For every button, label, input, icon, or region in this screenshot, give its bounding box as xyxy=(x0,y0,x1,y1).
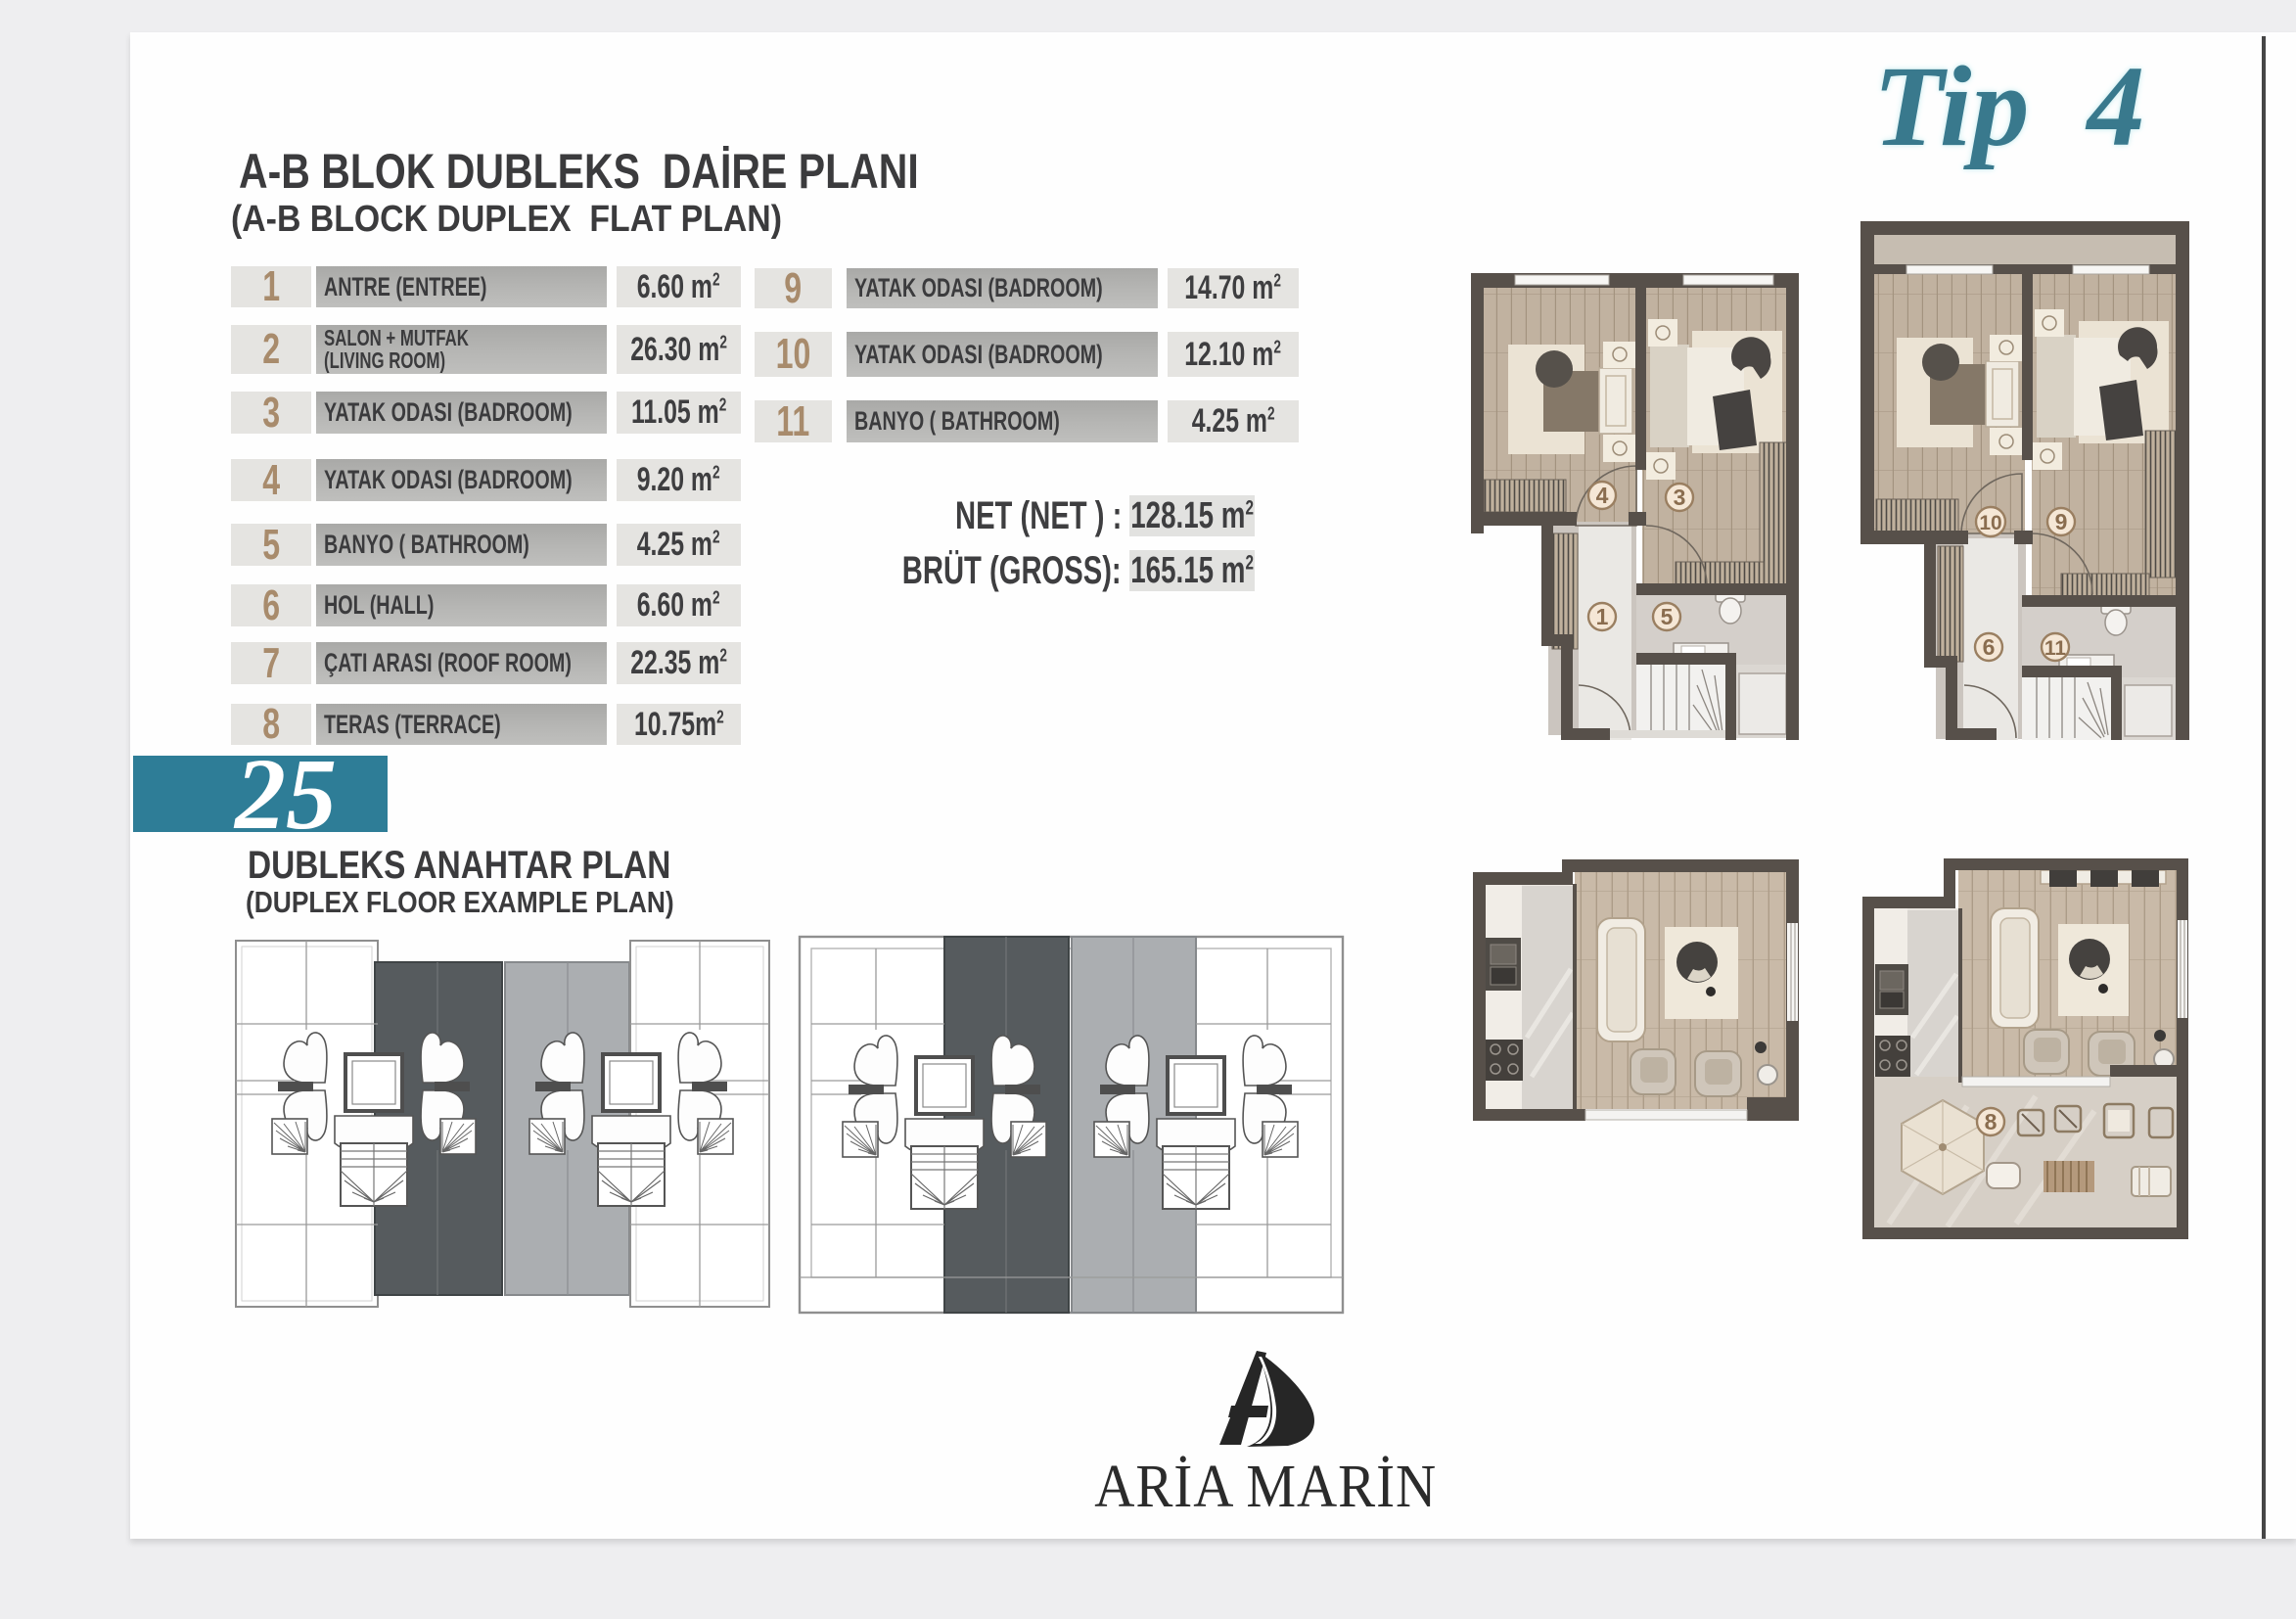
svg-text:8: 8 xyxy=(1985,1109,1998,1134)
svg-text:10: 10 xyxy=(1979,512,2001,534)
svg-text:11: 11 xyxy=(2044,637,2067,660)
svg-text:6: 6 xyxy=(1983,634,1996,660)
svg-text:4: 4 xyxy=(1596,483,1609,508)
svg-text:1: 1 xyxy=(1596,604,1609,629)
svg-text:3: 3 xyxy=(1674,485,1686,510)
svg-text:9: 9 xyxy=(2055,509,2068,534)
svg-text:5: 5 xyxy=(1661,604,1674,629)
